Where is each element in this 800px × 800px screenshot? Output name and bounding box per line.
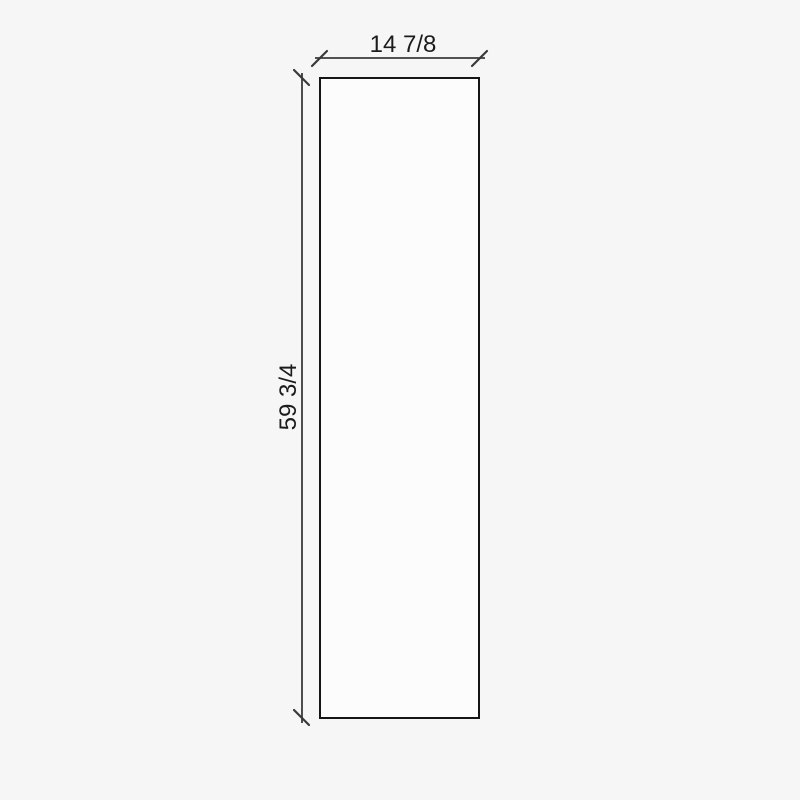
panel-outline bbox=[320, 78, 479, 718]
width-dimension: 14 7/8 bbox=[312, 31, 487, 66]
height-dimension: 59 3/4 bbox=[275, 70, 309, 725]
drawing-canvas: 14 7/8 59 3/4 bbox=[0, 0, 800, 800]
panel-dimension-drawing: 14 7/8 59 3/4 bbox=[0, 0, 800, 800]
height-dimension-label: 59 3/4 bbox=[275, 364, 302, 431]
width-dimension-label: 14 7/8 bbox=[370, 31, 437, 58]
